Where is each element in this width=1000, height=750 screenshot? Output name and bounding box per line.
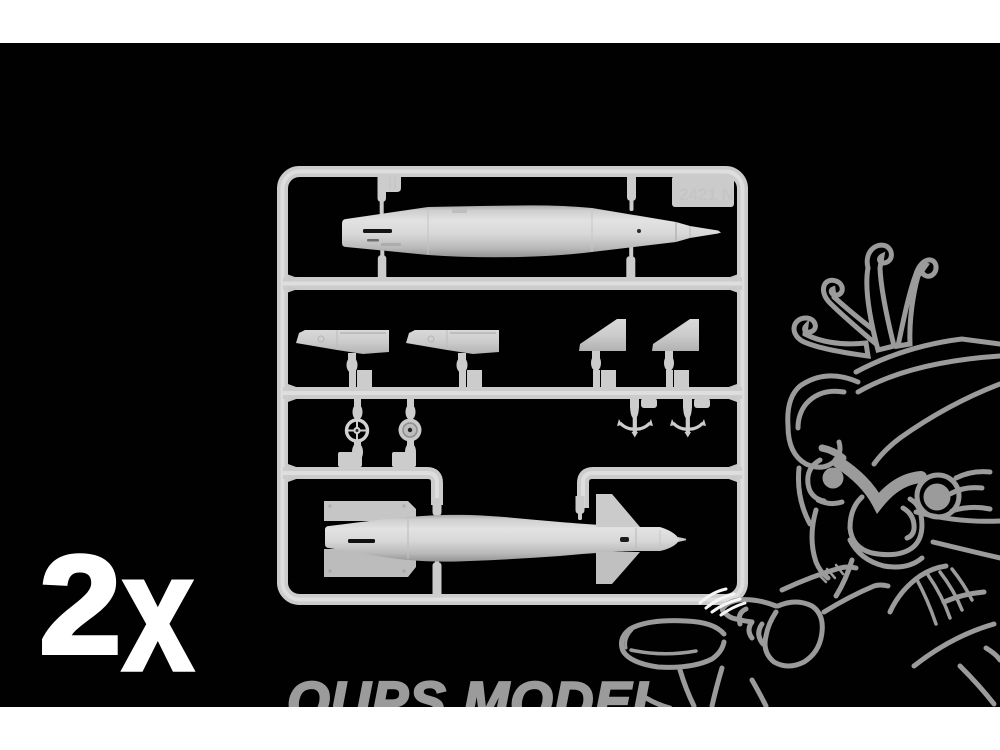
- svg-text:2421 N: 2421 N: [679, 185, 734, 204]
- svg-text:2: 2: [39, 526, 122, 683]
- svg-text:x: x: [122, 518, 194, 706]
